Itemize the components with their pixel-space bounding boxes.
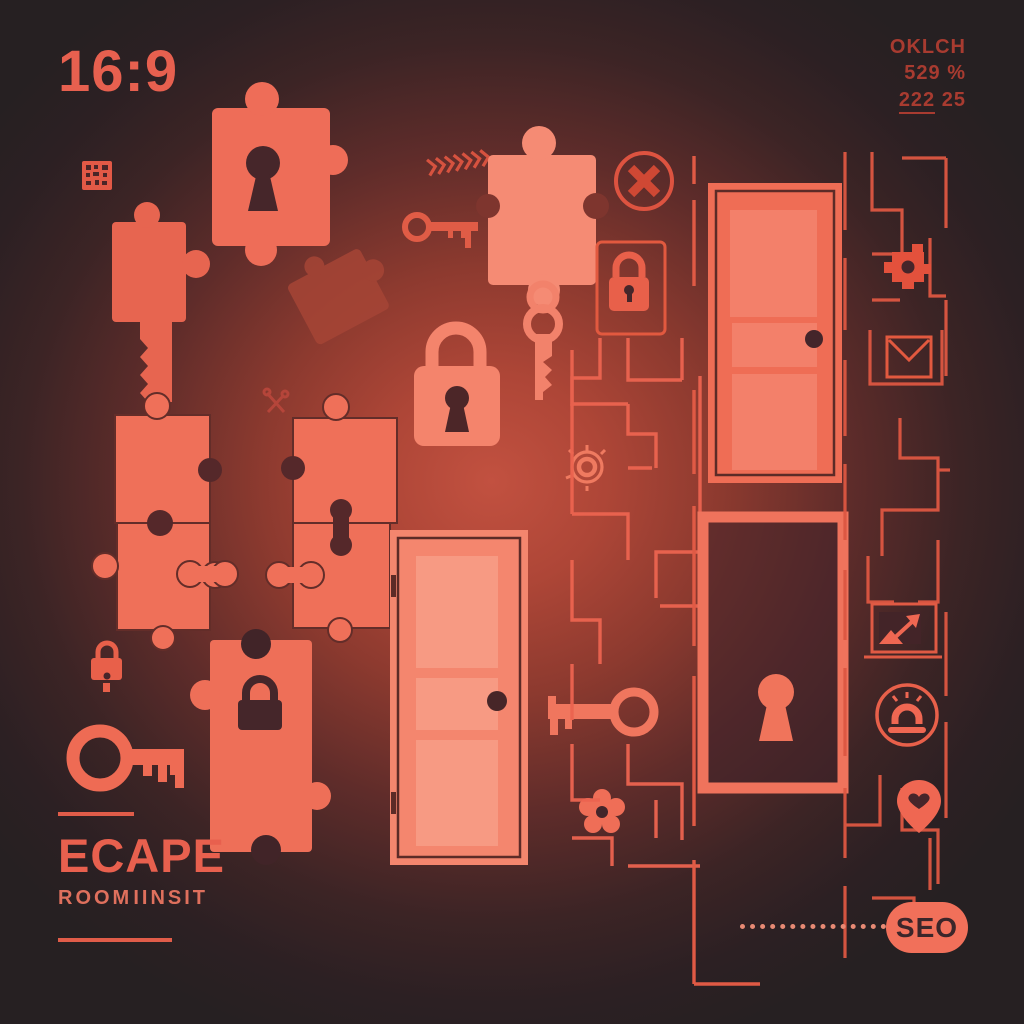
alarm-bell-icon xyxy=(877,685,937,745)
padlock-large-icon xyxy=(414,328,500,446)
puzzle-piece-tall xyxy=(112,202,210,418)
puzzle-piece-top xyxy=(476,126,609,306)
color-spec-line3a: 222 xyxy=(899,89,935,114)
envelope-icon xyxy=(887,337,931,377)
key-large-icon xyxy=(73,731,184,788)
lock-frame-icon xyxy=(597,242,665,334)
crossed-keys-glyph xyxy=(264,389,288,412)
gear-flower-icon xyxy=(579,789,625,833)
door-upper-right xyxy=(708,183,842,483)
image-arrow-icon xyxy=(864,604,942,657)
puzzle-piece-rotated xyxy=(280,229,402,346)
qr-code-icon xyxy=(82,161,112,190)
color-spec-line3b: 25 xyxy=(942,89,966,111)
seo-badge-label: SEO xyxy=(896,912,958,944)
puzzle-cross-icon xyxy=(884,244,931,289)
aspect-ratio-label: 16:9 xyxy=(58,38,178,105)
door-keyhole-lower-right xyxy=(703,517,843,788)
chevron-arrows-icon xyxy=(427,149,490,175)
color-spec-line1: OKLCH xyxy=(890,34,966,60)
poster-title: ECAPE xyxy=(58,832,208,879)
door-center xyxy=(390,530,528,865)
dotted-line xyxy=(740,924,886,929)
subtitle-word-room: ROOM xyxy=(58,887,132,910)
color-spec-line2: 529 % xyxy=(890,60,966,86)
x-circle-icon xyxy=(616,153,672,209)
key-small-icon xyxy=(405,215,478,248)
door-knob xyxy=(487,691,507,711)
puzzle-cluster xyxy=(92,393,397,650)
title-rule-top xyxy=(58,812,134,816)
padlock-small-icon xyxy=(91,643,122,692)
key-left-icon xyxy=(548,692,654,735)
puzzle-piece-keyhole xyxy=(212,82,348,266)
subtitle-word-insit: IINSIT xyxy=(133,887,208,910)
poster-subtitle: ROOM IINSIT xyxy=(58,887,208,910)
seo-badge[interactable]: SEO xyxy=(886,902,968,953)
color-spec-line3: 222 25 xyxy=(890,87,966,113)
door-knob xyxy=(805,330,823,348)
title-rule-bottom xyxy=(58,938,172,942)
title-block: ECAPE ROOM IINSIT xyxy=(58,812,208,942)
poster-canvas: 16:9 OKLCH 529 % 222 25 ECAPE ROOM IINSI… xyxy=(0,0,1024,1024)
color-spec-block: OKLCH 529 % 222 25 xyxy=(890,34,966,113)
